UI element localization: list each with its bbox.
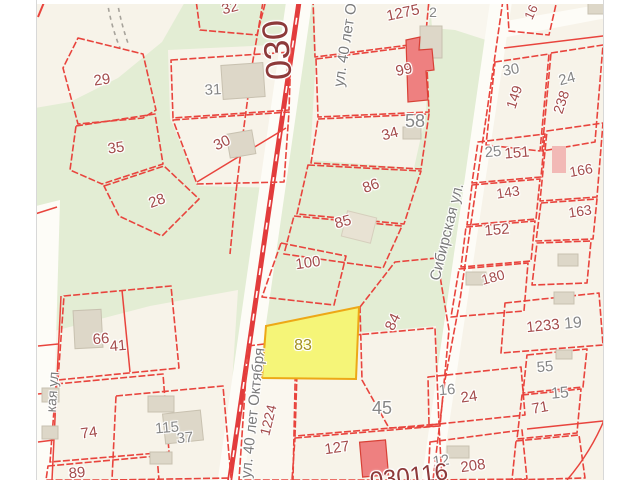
- parcel-label-74: 74: [80, 424, 99, 441]
- parcel-label-149: 149: [504, 84, 525, 111]
- parcel-label-151: 151: [504, 144, 530, 161]
- quarter-label-030116: 030116: [369, 460, 450, 480]
- parcel-label-163: 163: [567, 202, 592, 219]
- parcel-label-1233: 1233: [526, 317, 561, 335]
- parcel-label-28: 28: [147, 191, 168, 211]
- parcel-label-30: 30: [211, 133, 232, 154]
- parcel-label-208: 208: [460, 457, 487, 475]
- parcel-label-34: 34: [380, 125, 400, 144]
- parcel-label-100: 100: [295, 254, 322, 272]
- right-margin: [603, 0, 640, 480]
- street-label: ул. 40 лет Октября: [331, 0, 366, 88]
- parcel-label-71: 71: [530, 399, 549, 417]
- parcel-label-89: 89: [68, 465, 86, 480]
- parcel-label-238: 238: [551, 89, 572, 116]
- street-label: Сибирская ул.: [428, 182, 467, 282]
- parcel-label-24: 24: [460, 388, 479, 405]
- parcel-label-152: 152: [484, 221, 510, 238]
- parcel-label-30: 30: [501, 61, 520, 79]
- map-viewport[interactable]: 3229313530281275299583486851008384451271…: [0, 0, 640, 480]
- parcel-label-1275: 1275: [385, 2, 421, 24]
- parcel-label-2: 2: [429, 5, 437, 19]
- top-margin: [0, 0, 640, 4]
- parcel-label-19: 19: [563, 315, 582, 332]
- parcel-label-25: 25: [484, 144, 502, 160]
- parcel-label-31: 31: [204, 82, 221, 98]
- parcel-label-180: 180: [480, 267, 506, 287]
- parcel-label-16: 16: [438, 382, 456, 398]
- parcel-label-58: 58: [405, 112, 425, 130]
- parcel-label-55: 55: [536, 359, 554, 375]
- street-label: кая ул: [44, 371, 61, 412]
- left-margin: [0, 0, 37, 480]
- parcel-label-35: 35: [107, 139, 126, 156]
- parcel-label-127: 127: [324, 439, 351, 457]
- parcel-label-16: 16: [522, 3, 540, 22]
- parcel-label-29: 29: [93, 71, 112, 88]
- parcel-label-84: 84: [383, 311, 404, 332]
- parcel-label-86: 86: [361, 176, 382, 196]
- parcel-label-37: 37: [176, 430, 194, 446]
- parcel-label-83[interactable]: 83: [294, 338, 312, 354]
- parcel-label-166: 166: [568, 161, 593, 179]
- parcel-label-45: 45: [372, 399, 392, 417]
- parcel-label-66: 66: [92, 331, 110, 347]
- map-labels-layer: 3229313530281275299583486851008384451271…: [0, 0, 640, 480]
- parcel-label-41: 41: [109, 338, 127, 354]
- quarter-label-030: 030: [256, 19, 297, 82]
- parcel-label-15: 15: [550, 385, 569, 402]
- parcel-label-24: 24: [557, 70, 577, 89]
- parcel-label-143: 143: [495, 183, 520, 200]
- parcel-label-85: 85: [333, 213, 353, 232]
- parcel-label-99: 99: [394, 61, 413, 79]
